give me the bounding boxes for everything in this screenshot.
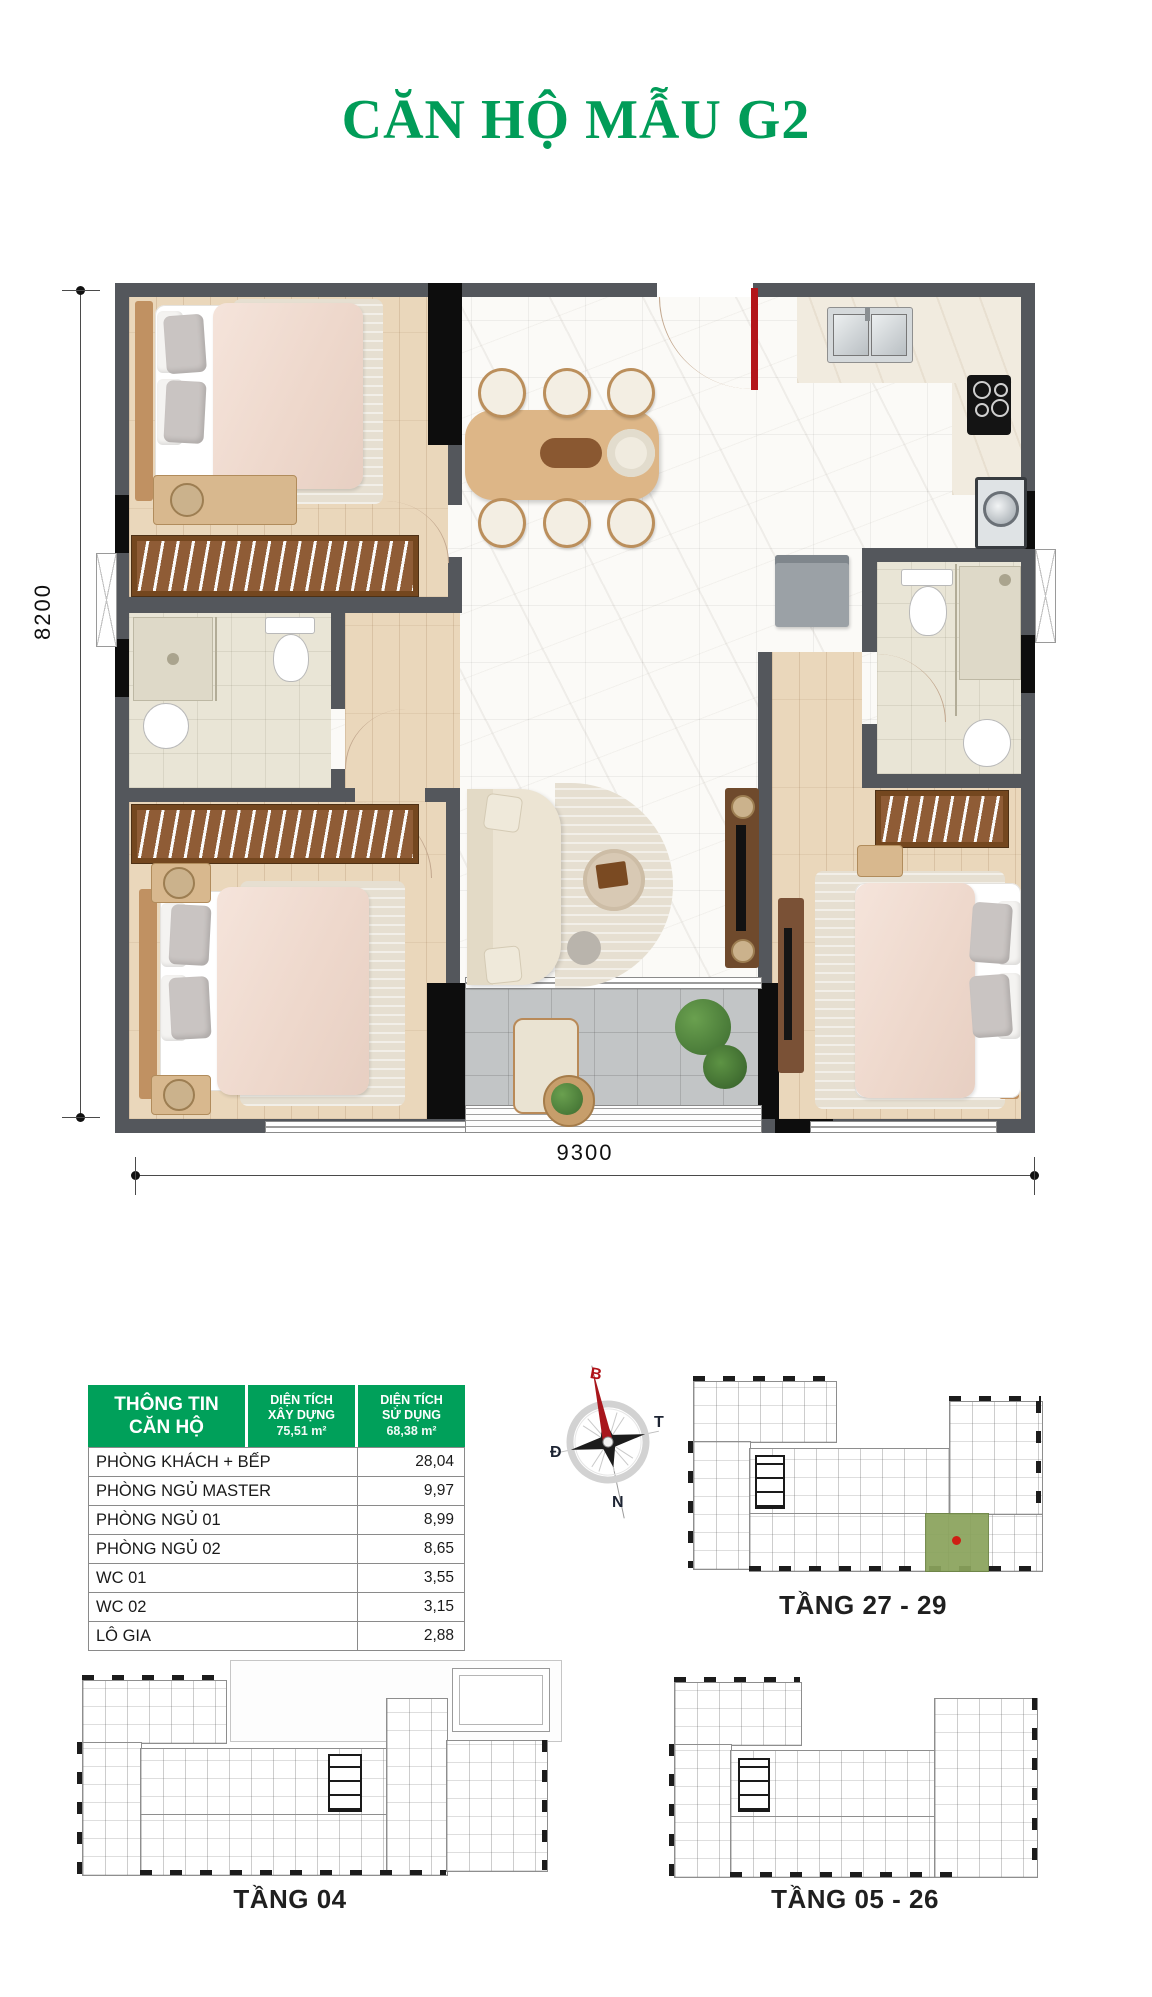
building-wing: [82, 1742, 142, 1876]
keyplan-floor-04: [80, 1658, 562, 1874]
dimension-line-vertical: [80, 290, 81, 1118]
headboard-bedroom01: [139, 889, 157, 1099]
hallway-left-floor: [345, 613, 460, 802]
ac-ledge-left: [96, 553, 117, 647]
header-dien-tich-xay-dung: DIỆN TÍCH XÂY DỰNG 75,51 m²: [248, 1385, 355, 1447]
wall-wc01-left-a: [862, 562, 877, 652]
entry-door-leaf: [751, 288, 758, 390]
building-wing: [693, 1441, 751, 1570]
column-ticks: [730, 1872, 952, 1877]
column-left-b: [115, 639, 129, 697]
headboard-master: [135, 301, 153, 501]
keyplan-floors-05-26: [672, 1680, 1038, 1878]
wall-bedroom01-right: [446, 802, 460, 988]
column-ticks: [1036, 1401, 1041, 1513]
pillow: [163, 380, 206, 444]
sink-basin: [871, 314, 907, 356]
keyplan-label-05-26: TẦNG 05 - 26: [672, 1884, 1038, 1915]
wardrobe-master: [131, 535, 419, 597]
keyplan-label-27-29: TẦNG 27 - 29: [685, 1590, 1041, 1621]
hallway-right-floor: [772, 652, 862, 788]
info-table: THÔNG TIN CĂN HỘ DIỆN TÍCH XÂY DỰNG 75,5…: [88, 1385, 465, 1651]
wardrobe-bedroom01: [131, 804, 419, 864]
tv: [736, 825, 746, 931]
dining-chair: [607, 498, 655, 548]
info-table-header: THÔNG TIN CĂN HỘ DIỆN TÍCH XÂY DỰNG 75,5…: [88, 1385, 465, 1447]
header-thong-tin: THÔNG TIN CĂN HỘ: [88, 1385, 245, 1447]
wall-top-left: [115, 283, 657, 297]
shower-head: [999, 574, 1011, 586]
building-wing: [934, 1698, 1038, 1878]
compass-label-west: T: [654, 1414, 664, 1432]
wall-wc01-bottom: [862, 774, 1021, 788]
faucet: [865, 307, 870, 321]
window-bedroom01: [265, 1121, 472, 1133]
poster-page: CĂN HỘ MẪU G2 8200 9300: [0, 0, 1152, 1997]
column-balcony-right: [758, 983, 779, 1119]
window-bedroom02: [810, 1121, 997, 1133]
compass-label-east: Đ: [550, 1444, 562, 1462]
toilet-bowl-wc01: [909, 586, 947, 636]
wall-wc02-bottom-a: [115, 788, 355, 802]
building-wing: [674, 1744, 732, 1878]
bed-bedroom01-duvet: [217, 887, 369, 1095]
table-row: LÔ GIA 2,88: [88, 1622, 465, 1651]
dimension-tick: [62, 1117, 100, 1118]
fridge: [775, 555, 849, 627]
building-wing: [949, 1401, 1043, 1515]
lamp: [170, 483, 204, 517]
wall-top-right: [753, 283, 1035, 297]
dimension-label-width: 9300: [135, 1140, 1035, 1166]
column-ticks: [669, 1744, 674, 1876]
page-title: CĂN HỘ MẪU G2: [0, 88, 1152, 152]
bed-master-duvet: [213, 303, 363, 489]
wall-wc02-bottom-b: [425, 788, 460, 802]
wall-bedroom-master-right-a: [448, 445, 462, 505]
lamp: [163, 867, 195, 899]
column-ticks: [82, 1675, 225, 1680]
unit-location-dot: [952, 1536, 961, 1545]
burner: [991, 399, 1009, 417]
wall-right: [1021, 283, 1035, 1133]
elevator-core: [328, 1754, 362, 1812]
keyplan-label-04: TẦNG 04: [60, 1884, 520, 1915]
wall-bedroom-master-bottom: [115, 597, 462, 613]
sofa-pillow: [483, 793, 524, 834]
wardrobe-bedroom02: [875, 790, 1009, 848]
keyplan-floors-27-29: [685, 1373, 1041, 1571]
column-right-b: [1021, 635, 1035, 693]
pool: [452, 1668, 550, 1732]
main-floorplan: [115, 283, 1035, 1133]
plant: [551, 1083, 583, 1115]
dining-chair: [478, 498, 526, 548]
building-wing: [730, 1816, 954, 1878]
toilet-tank-wc02: [265, 617, 315, 634]
nightstand: [857, 845, 903, 877]
dimension-line-horizontal: [135, 1175, 1035, 1176]
burner: [994, 383, 1008, 397]
dining-chair: [607, 368, 655, 418]
column-ticks: [688, 1441, 693, 1568]
wall-wc02-right-a: [331, 613, 345, 709]
column-ticks: [749, 1566, 1039, 1571]
coffee-table-book: [595, 861, 628, 889]
shower-drain: [167, 653, 179, 665]
building-wing: [693, 1381, 837, 1443]
column-ticks: [674, 1677, 800, 1682]
decor-candle: [731, 795, 755, 819]
lamp: [163, 1079, 195, 1111]
compass-icon: [546, 1358, 670, 1526]
washer-drum: [983, 491, 1019, 527]
building-wing: [674, 1682, 802, 1746]
table-row: PHÒNG KHÁCH + BẾP 28,04: [88, 1448, 465, 1477]
burner: [975, 403, 989, 417]
wall-wc01-top: [862, 548, 1021, 562]
sink-wc02: [143, 703, 189, 749]
header-dien-tich-su-dung: DIỆN TÍCH SỬ DỤNG 68,38 m²: [358, 1385, 465, 1447]
decor-candle: [731, 939, 755, 963]
pillow: [163, 314, 207, 375]
dining-chair: [478, 368, 526, 418]
sofa-pillow: [483, 945, 523, 985]
table-row: WC 01 3,55: [88, 1564, 465, 1593]
info-table-body: PHÒNG KHÁCH + BẾP 28,04 PHÒNG NGỦ MASTER…: [88, 1447, 465, 1651]
dimension-tick: [62, 290, 100, 291]
pillow: [168, 976, 211, 1040]
column-balcony-left: [427, 983, 465, 1119]
toilet-bowl-wc02: [273, 634, 309, 682]
building-wing: [82, 1680, 227, 1744]
building-wing: [749, 1513, 1043, 1572]
table-row: PHÒNG NGỦ MASTER 9,97: [88, 1477, 465, 1506]
table-row: WC 02 3,15: [88, 1593, 465, 1622]
column-ticks: [1032, 1698, 1037, 1876]
ac-ledge-right: [1035, 549, 1056, 643]
dimension-label-height: 8200: [30, 583, 56, 640]
bed-bedroom02-duvet: [855, 883, 975, 1098]
table-runner: [540, 438, 602, 468]
wall-left: [115, 283, 129, 1133]
shower-glass: [215, 617, 217, 701]
pillow: [969, 902, 1013, 965]
table-row: PHÒNG NGỦ 02 8,65: [88, 1535, 465, 1564]
plate: [607, 429, 655, 477]
column-ticks: [140, 1870, 446, 1875]
elevator-core: [755, 1455, 785, 1509]
tv-bedroom02: [784, 928, 792, 1040]
plant: [703, 1045, 747, 1089]
shower-wc01: [959, 566, 1021, 680]
column-ticks: [949, 1396, 1041, 1401]
pillow: [969, 974, 1013, 1039]
burner: [973, 381, 991, 399]
shower-glass: [955, 564, 957, 716]
dining-chair: [543, 368, 591, 418]
wall-wc02-right-b: [331, 769, 345, 802]
column-ticks: [77, 1742, 82, 1874]
column-left-a: [115, 495, 129, 553]
building-wing: [386, 1698, 448, 1876]
building-wing: [446, 1740, 548, 1872]
dining-chair: [543, 498, 591, 548]
pillow: [168, 904, 211, 966]
table-row: PHÒNG NGỦ 01 8,99: [88, 1506, 465, 1535]
column-top: [428, 283, 462, 445]
sink-wc01: [963, 719, 1011, 767]
compass-label-south: N: [612, 1494, 624, 1512]
column-ticks: [693, 1376, 835, 1381]
column-ticks: [542, 1740, 547, 1870]
balcony-railing: [465, 1105, 762, 1133]
toilet-tank-wc01: [901, 569, 953, 586]
elevator-core: [738, 1758, 770, 1812]
pouf: [567, 931, 601, 965]
sink-basin: [833, 314, 869, 356]
